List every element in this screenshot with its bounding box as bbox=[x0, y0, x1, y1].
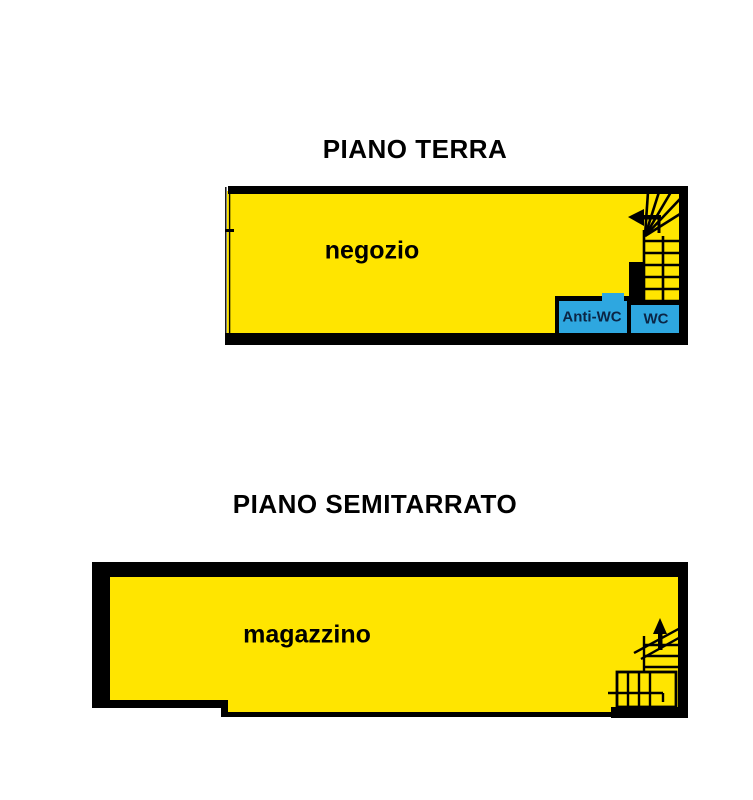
anti-wc-label: Anti-WC bbox=[562, 309, 621, 326]
magazzino-room-fill bbox=[106, 574, 680, 712]
stair-wall-stub bbox=[629, 262, 644, 302]
basement-floor-plan-drawing bbox=[92, 562, 688, 718]
basement-floor-plan bbox=[92, 562, 688, 718]
ground-floor-title: PIANO TERRA bbox=[323, 134, 508, 165]
wc-label: WC bbox=[644, 311, 669, 328]
floor-plan-page: PIANO TERRA bbox=[0, 0, 753, 800]
magazzino-label: magazzino bbox=[243, 621, 371, 650]
negozio-label: negozio bbox=[325, 237, 419, 266]
basement-floor-title: PIANO SEMITARRATO bbox=[233, 489, 517, 520]
